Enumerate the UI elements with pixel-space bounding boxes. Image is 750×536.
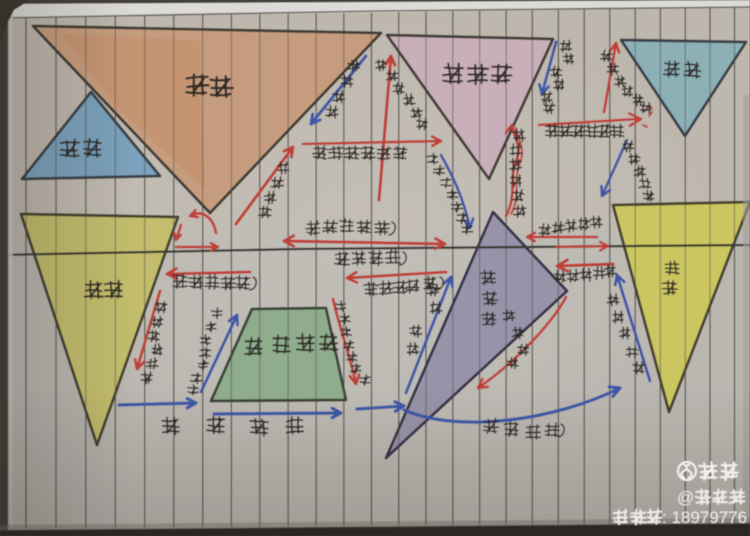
svg-text:: 18979776: : 18979776	[662, 508, 747, 527]
svg-text:@: @	[677, 488, 694, 507]
